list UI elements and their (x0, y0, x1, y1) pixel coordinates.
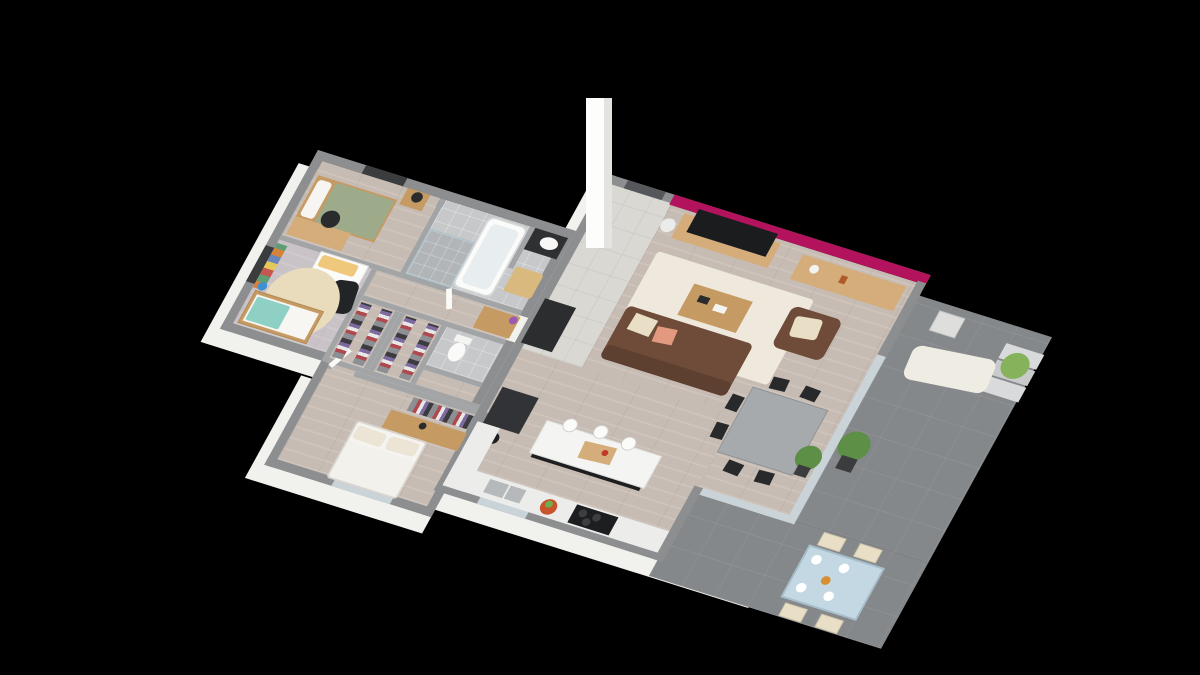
chimney-pillar (586, 98, 612, 248)
door-leaf-bath (446, 288, 452, 309)
floorplan-scene (0, 0, 1200, 675)
